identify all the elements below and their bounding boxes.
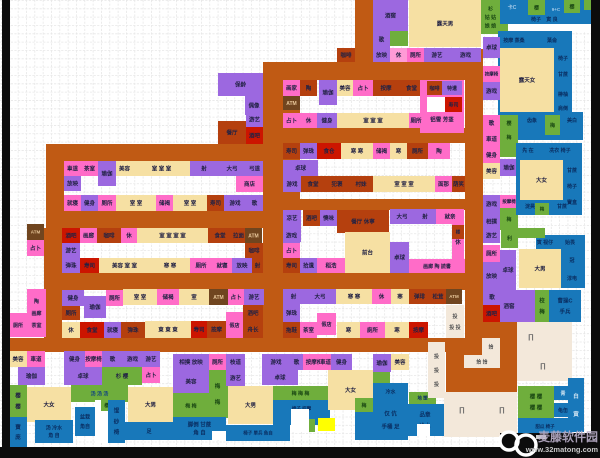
svg-text:游戏: 游戏 xyxy=(486,200,498,208)
svg-text:休: 休 xyxy=(395,51,402,59)
svg-text:校: 校 xyxy=(539,297,545,305)
svg-text:酒窖: 酒窖 xyxy=(385,12,397,20)
svg-text:按摩 蒸桑: 按摩 蒸桑 xyxy=(503,37,525,44)
svg-text:角自: 角自 xyxy=(79,423,90,430)
svg-text:樱: 樱 xyxy=(534,4,539,11)
svg-text:角 自: 角 自 xyxy=(193,428,206,436)
svg-text:歌: 歌 xyxy=(379,36,385,44)
svg-text:射: 射 xyxy=(290,293,297,301)
svg-text:白: 白 xyxy=(573,392,579,400)
svg-text:休: 休 xyxy=(378,293,385,301)
svg-text:健身: 健身 xyxy=(486,151,498,159)
svg-text:陶: 陶 xyxy=(34,298,39,305)
svg-text:酒窖: 酒窖 xyxy=(503,302,515,310)
svg-text:梅: 梅 xyxy=(506,216,511,223)
svg-text:拾: 拾 xyxy=(488,343,493,350)
svg-text:健身: 健身 xyxy=(336,358,348,366)
svg-text:游戏: 游戏 xyxy=(229,199,241,207)
svg-text:休: 休 xyxy=(67,326,74,334)
svg-text:按摩: 按摩 xyxy=(380,84,392,92)
svg-text:室 室 室: 室 室 室 xyxy=(363,117,383,125)
svg-text:弹珠: 弹珠 xyxy=(303,147,315,155)
svg-text:画廊 陶 読書: 画廊 陶 読書 xyxy=(423,263,451,270)
svg-text:酒吧: 酒吧 xyxy=(65,232,77,240)
svg-text:手兵: 手兵 xyxy=(559,307,571,315)
svg-text:梅: 梅 xyxy=(550,122,555,129)
svg-text:汤 汤 汤: 汤 汤 汤 xyxy=(91,390,109,397)
svg-text:歌: 歌 xyxy=(489,119,495,127)
svg-text:衫: 衫 xyxy=(487,5,493,12)
svg-text:商店: 商店 xyxy=(244,180,256,188)
svg-text:厕所: 厕所 xyxy=(101,199,113,207)
svg-text:茶室: 茶室 xyxy=(302,326,315,334)
svg-text:就亲: 就亲 xyxy=(444,213,456,221)
svg-text:游艺: 游艺 xyxy=(248,293,260,301)
svg-text:面那: 面那 xyxy=(438,180,450,188)
svg-text:就寝: 就寝 xyxy=(216,262,228,270)
svg-text:射: 射 xyxy=(421,213,428,221)
svg-text:歌: 歌 xyxy=(489,293,495,301)
svg-text:拾遺: 拾遺 xyxy=(303,262,315,270)
svg-text:游戏: 游戏 xyxy=(486,87,498,95)
svg-text:寒 寒: 寒 寒 xyxy=(348,293,361,301)
svg-text:室 室: 室 室 xyxy=(134,293,147,301)
svg-text:美容: 美容 xyxy=(339,84,351,92)
svg-text:就寝: 就寝 xyxy=(67,199,79,207)
svg-text:瑜伽: 瑜伽 xyxy=(89,303,101,311)
svg-text:游艺: 游艺 xyxy=(431,51,443,59)
svg-text:画廊: 画廊 xyxy=(83,232,95,240)
svg-text:大弓: 大弓 xyxy=(226,165,237,173)
svg-text:淀昊: 淀昊 xyxy=(525,203,536,210)
svg-text:寿司: 寿司 xyxy=(193,326,204,334)
svg-text:歌: 歌 xyxy=(294,358,300,366)
svg-text:歌: 歌 xyxy=(110,355,116,363)
svg-text:厕所: 厕所 xyxy=(109,294,121,302)
svg-text:曹操C: 曹操C xyxy=(558,297,573,305)
svg-text:特遣: 特遣 xyxy=(447,85,457,92)
svg-text:杉 樱: 杉 樱 xyxy=(116,372,129,380)
svg-text:梅: 梅 xyxy=(539,307,545,315)
svg-text:拖鞋: 拖鞋 xyxy=(286,326,298,334)
svg-text:椅: 椅 xyxy=(114,428,120,436)
svg-text:按摩: 按摩 xyxy=(211,326,223,334)
svg-text:储褐: 储褐 xyxy=(158,199,171,207)
svg-text:樱: 樱 xyxy=(15,402,21,410)
svg-text:美容: 美容 xyxy=(486,167,498,175)
svg-text:∏: ∏ xyxy=(540,363,546,370)
svg-text:車道: 車道 xyxy=(486,135,498,143)
svg-text:按摩椅: 按摩椅 xyxy=(502,198,516,205)
svg-text:梅 梅 梅: 梅 梅 梅 xyxy=(292,390,310,397)
svg-text:ATM: ATM xyxy=(449,294,459,299)
svg-text:寒: 寒 xyxy=(397,293,403,301)
svg-text:甘蔗: 甘蔗 xyxy=(557,203,567,210)
svg-text:ATM: ATM xyxy=(286,101,296,107)
svg-text:相撲: 相撲 xyxy=(486,218,498,226)
svg-text:美容: 美容 xyxy=(394,358,406,366)
svg-text:厕所: 厕所 xyxy=(410,117,422,125)
svg-text:汤 冷水: 汤 冷水 xyxy=(46,425,63,432)
svg-text:瑜伽: 瑜伽 xyxy=(101,170,113,178)
svg-text:寅 良: 寅 良 xyxy=(546,16,557,23)
svg-text:寒: 寒 xyxy=(394,326,400,334)
svg-text:酒吧: 酒吧 xyxy=(249,132,261,140)
svg-text:卓球: 卓球 xyxy=(274,374,286,382)
svg-text:食堂: 食堂 xyxy=(213,232,226,240)
svg-text:相撲 放映: 相撲 放映 xyxy=(179,358,203,366)
svg-text:健身: 健身 xyxy=(84,199,96,207)
svg-text:拉面: 拉面 xyxy=(233,232,245,240)
svg-text:葉侖: 葉侖 xyxy=(546,37,558,44)
svg-text:厕所: 厕所 xyxy=(486,250,498,258)
svg-text:寿司: 寿司 xyxy=(286,147,297,155)
svg-text:樱 樱: 樱 樱 xyxy=(530,393,543,401)
svg-text:冼衣 椅子: 冼衣 椅子 xyxy=(549,147,570,154)
svg-text:画廊: 画廊 xyxy=(31,310,41,317)
svg-text:ATM: ATM xyxy=(213,295,223,301)
svg-text:投 投: 投 投 xyxy=(449,324,461,331)
svg-text:先 在: 先 在 xyxy=(522,147,533,154)
svg-text:東 東 東: 東 東 東 xyxy=(158,326,178,334)
svg-text:茶室: 茶室 xyxy=(83,165,96,173)
svg-text:咖啡: 咖啡 xyxy=(340,51,352,59)
svg-text:娘 娘: 娘 娘 xyxy=(485,22,496,29)
svg-text:茶室: 茶室 xyxy=(30,322,41,329)
svg-text:室 室: 室 室 xyxy=(130,199,143,207)
svg-text:储褐: 储褐 xyxy=(375,147,388,155)
svg-text:放映: 放映 xyxy=(375,51,388,59)
svg-text:仅 伉: 仅 伉 xyxy=(383,409,397,417)
svg-text:按摩椅: 按摩椅 xyxy=(485,71,499,78)
svg-text:食堂: 食堂 xyxy=(85,326,98,334)
svg-text:歌: 歌 xyxy=(252,199,258,207)
svg-text:松茸: 松茸 xyxy=(432,293,444,301)
svg-text:瑜伽: 瑜伽 xyxy=(322,89,334,97)
svg-text:枝道: 枝道 xyxy=(229,358,242,366)
svg-text:休: 休 xyxy=(454,238,461,246)
svg-text:餐厅 休寧: 餐厅 休寧 xyxy=(350,218,375,226)
svg-text:食仓: 食仓 xyxy=(322,147,335,155)
svg-text:休: 休 xyxy=(125,232,132,240)
svg-text:盆栽: 盆栽 xyxy=(79,414,90,421)
svg-text:www.32matong.com: www.32matong.com xyxy=(525,445,599,454)
svg-text:射: 射 xyxy=(200,165,207,173)
svg-text:寅 视仔: 寅 视仔 xyxy=(537,239,553,246)
svg-text:懊味: 懊味 xyxy=(323,214,335,222)
svg-text:食堂: 食堂 xyxy=(405,84,418,92)
svg-text:∏: ∏ xyxy=(459,407,465,414)
svg-text:梅: 梅 xyxy=(215,382,221,390)
svg-text:椅子: 椅子 xyxy=(567,183,577,190)
svg-text:青: 青 xyxy=(560,390,565,397)
svg-text:卓球: 卓球 xyxy=(486,44,498,52)
svg-text:廁所: 廁所 xyxy=(367,326,379,334)
svg-text:陶: 陶 xyxy=(436,147,442,155)
svg-text:梅: 梅 xyxy=(540,206,545,213)
svg-text:厕所: 厕所 xyxy=(212,358,224,366)
svg-text:画家: 画家 xyxy=(286,84,298,92)
svg-text:弹琲: 弹琲 xyxy=(414,293,426,301)
svg-text:室 室 室: 室 室 室 xyxy=(394,180,414,188)
svg-text:弹珠: 弹珠 xyxy=(65,262,77,270)
svg-text:游艺: 游艺 xyxy=(145,355,157,363)
svg-text:角 自: 角 自 xyxy=(47,432,59,439)
svg-text:卓球: 卓球 xyxy=(394,254,406,262)
svg-text:占卜: 占卜 xyxy=(286,247,298,255)
svg-text:冷水: 冷水 xyxy=(385,388,396,395)
svg-text:大女: 大女 xyxy=(536,176,548,184)
svg-text:弓道: 弓道 xyxy=(249,165,261,173)
svg-text:品章: 品章 xyxy=(419,411,431,419)
svg-text:偶像: 偶像 xyxy=(248,102,260,110)
svg-text:游艺: 游艺 xyxy=(65,247,77,255)
svg-text:健身: 健身 xyxy=(67,294,79,302)
svg-text:室 室 室 室: 室 室 室 室 xyxy=(159,232,186,240)
svg-text:ATM: ATM xyxy=(31,230,41,235)
svg-text:美容 室 室: 美容 室 室 xyxy=(112,262,138,270)
svg-text:保龄: 保龄 xyxy=(234,81,247,89)
svg-text:占卜: 占卜 xyxy=(357,84,369,92)
svg-text:寿司: 寿司 xyxy=(84,262,95,270)
svg-text:美容: 美容 xyxy=(119,165,131,173)
svg-text:冠: 冠 xyxy=(569,257,574,264)
svg-text:游戏: 游戏 xyxy=(286,232,298,240)
svg-text:室 室: 室 室 xyxy=(184,199,197,207)
svg-text:脚倒 甘蔗: 脚倒 甘蔗 xyxy=(188,421,212,429)
svg-text:龟缶: 龟缶 xyxy=(558,407,568,414)
svg-text:∏: ∏ xyxy=(499,407,505,414)
svg-text:寶: 寶 xyxy=(14,423,21,431)
svg-text:大男: 大男 xyxy=(245,401,256,409)
svg-text:健身: 健身 xyxy=(69,355,81,363)
svg-text:車道: 車道 xyxy=(320,358,332,366)
svg-text:甘蔗: 甘蔗 xyxy=(558,71,568,78)
svg-text:美容: 美容 xyxy=(185,378,197,386)
svg-text:卓球: 卓球 xyxy=(502,266,514,274)
svg-text:寶盒: 寶盒 xyxy=(566,199,578,206)
svg-text:美容: 美容 xyxy=(12,355,24,363)
svg-text:庞: 庞 xyxy=(15,433,21,441)
svg-text:厕所: 厕所 xyxy=(65,309,77,317)
svg-text:食堂: 食堂 xyxy=(306,180,319,188)
svg-text:陶: 陶 xyxy=(306,84,312,92)
svg-text:大女: 大女 xyxy=(43,401,55,409)
svg-text:占卜: 占卜 xyxy=(145,371,157,379)
svg-text:∏: ∏ xyxy=(528,334,534,341)
svg-text:馄: 馄 xyxy=(113,407,120,415)
svg-text:游戏: 游戏 xyxy=(460,51,472,59)
svg-text:占卜: 占卜 xyxy=(286,117,298,125)
svg-text:卓球: 卓球 xyxy=(295,164,307,172)
svg-text:游戏: 游戏 xyxy=(127,355,139,363)
svg-text:游艺: 游艺 xyxy=(249,116,261,124)
svg-text:咖啡: 咖啡 xyxy=(248,247,260,255)
svg-text:梅 梅: 梅 梅 xyxy=(185,402,196,409)
svg-text:卡C: 卡C xyxy=(508,4,517,11)
svg-text:梅: 梅 xyxy=(506,134,511,141)
svg-text:前台: 前台 xyxy=(362,249,374,257)
svg-text:按摩椅: 按摩椅 xyxy=(85,355,102,363)
svg-text:村妹: 村妹 xyxy=(355,180,367,188)
svg-text:放映: 放映 xyxy=(485,272,498,280)
svg-text:車道: 車道 xyxy=(67,165,79,173)
svg-text:地 塑: 地 塑 xyxy=(417,395,428,402)
svg-text:車道: 車道 xyxy=(30,355,42,363)
svg-text:9+C: 9+C xyxy=(552,7,561,12)
svg-text:利: 利 xyxy=(506,235,512,242)
svg-text:酒吧: 酒吧 xyxy=(247,309,259,317)
svg-text:室: 室 xyxy=(191,293,197,301)
svg-text:梅: 梅 xyxy=(361,402,366,409)
svg-text:咖啡: 咖啡 xyxy=(429,85,439,92)
svg-text:舟长: 舟长 xyxy=(247,326,259,334)
svg-text:游艺: 游艺 xyxy=(486,232,498,240)
svg-text:寅: 寅 xyxy=(573,410,579,418)
svg-text:肩倒: 肩倒 xyxy=(558,105,568,112)
svg-text:弹珠: 弹珠 xyxy=(286,309,298,317)
svg-text:砂: 砂 xyxy=(113,418,120,426)
svg-text:弹珠: 弹珠 xyxy=(127,326,139,334)
svg-text:酒吧: 酒吧 xyxy=(486,310,498,318)
svg-text:就寝: 就寝 xyxy=(107,326,119,334)
svg-text:露天女: 露天女 xyxy=(519,76,536,84)
svg-text:荫笑: 荫笑 xyxy=(453,180,465,188)
svg-text:寒 寒: 寒 寒 xyxy=(351,147,364,155)
svg-text:大男: 大男 xyxy=(534,265,545,273)
svg-text:楼: 楼 xyxy=(456,229,461,236)
svg-text:淳电: 淳电 xyxy=(567,275,577,282)
svg-text:樱 樱: 樱 樱 xyxy=(530,403,543,411)
svg-text:始畏: 始畏 xyxy=(565,239,576,246)
svg-text:厕所: 厕所 xyxy=(410,51,422,59)
svg-text:凉艺: 凉艺 xyxy=(286,214,298,222)
svg-text:储褐: 储褐 xyxy=(161,293,174,301)
svg-text:占卜: 占卜 xyxy=(230,293,242,301)
svg-text:寿司: 寿司 xyxy=(210,199,221,207)
svg-text:寒: 寒 xyxy=(396,147,402,155)
svg-text:麦藤软件园: 麦藤软件园 xyxy=(538,429,598,444)
svg-text:樱: 樱 xyxy=(15,392,21,400)
svg-text:室 室 室: 室 室 室 xyxy=(152,165,172,173)
svg-text:餐厅: 餐厅 xyxy=(225,129,238,137)
svg-text:瑜伽: 瑜伽 xyxy=(503,164,515,172)
svg-text:椅子: 椅子 xyxy=(558,55,568,62)
svg-text:寿司: 寿司 xyxy=(447,101,458,108)
svg-text:拾 拾: 拾 拾 xyxy=(476,358,487,365)
svg-text:放映: 放映 xyxy=(235,262,248,270)
svg-text:樱: 樱 xyxy=(569,3,574,10)
svg-text:射: 射 xyxy=(254,262,261,270)
svg-text:姑 姑: 姑 姑 xyxy=(485,14,496,21)
svg-text:假店: 假店 xyxy=(229,322,239,329)
svg-text:椅子 單兵 魚自: 椅子 單兵 魚自 xyxy=(243,430,273,437)
svg-text:咖啡: 咖啡 xyxy=(103,232,115,240)
svg-text:寒 寒: 寒 寒 xyxy=(164,262,177,270)
svg-text:游戏: 游戏 xyxy=(286,180,298,188)
svg-text:大弓: 大弓 xyxy=(396,213,407,221)
svg-text:大女: 大女 xyxy=(345,386,357,394)
svg-text:齿象: 齿象 xyxy=(527,117,537,124)
svg-text:厕所: 厕所 xyxy=(13,322,23,329)
svg-text:大弓: 大弓 xyxy=(314,293,325,301)
svg-text:寒: 寒 xyxy=(346,326,352,334)
svg-text:稻浩: 稻浩 xyxy=(325,262,337,270)
svg-text:按摩: 按摩 xyxy=(413,326,425,334)
svg-text:椅子: 椅子 xyxy=(531,16,541,23)
svg-text:樱: 樱 xyxy=(506,120,511,127)
svg-text:梅: 梅 xyxy=(215,398,221,406)
svg-text:铝雪 芳茎: 铝雪 芳茎 xyxy=(430,116,454,124)
svg-text:大男: 大男 xyxy=(145,401,156,409)
svg-text:厕所: 厕所 xyxy=(195,262,207,270)
svg-text:游艺: 游艺 xyxy=(230,374,242,382)
svg-text:瑜伽: 瑜伽 xyxy=(376,359,388,367)
svg-text:假店: 假店 xyxy=(321,321,331,328)
svg-text:游戏: 游戏 xyxy=(270,358,282,366)
svg-text:酒吧: 酒吧 xyxy=(306,214,318,222)
svg-text:ATM: ATM xyxy=(248,233,258,239)
svg-text:放映: 放映 xyxy=(66,180,79,188)
svg-text:厕所: 厕所 xyxy=(412,147,424,155)
svg-text:占卜: 占卜 xyxy=(30,244,42,252)
svg-text:健身: 健身 xyxy=(321,117,333,125)
svg-text:犯褒: 犯褒 xyxy=(330,180,343,188)
svg-text:卓球: 卓球 xyxy=(77,372,89,380)
svg-text:甘蔗: 甘蔗 xyxy=(567,167,577,174)
svg-text:休: 休 xyxy=(305,117,312,125)
svg-text:寿司: 寿司 xyxy=(286,262,297,270)
svg-text:露天男: 露天男 xyxy=(437,20,454,28)
svg-text:美白: 美白 xyxy=(567,117,577,124)
svg-text:榊柚: 榊柚 xyxy=(558,91,568,98)
svg-text:手桶 足: 手桶 足 xyxy=(381,423,400,431)
svg-text:瑜伽: 瑜伽 xyxy=(26,372,38,380)
